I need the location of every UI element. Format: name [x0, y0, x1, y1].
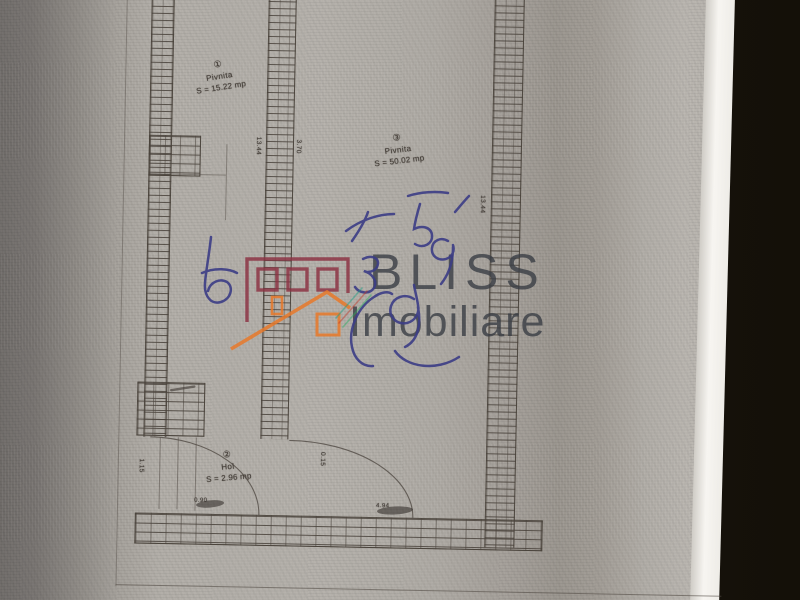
ink-smile-curve — [395, 351, 459, 366]
ink-figure-9-large — [390, 285, 419, 347]
photographed-floorplan-document: ① Pivnita S = 15.22 mp ③ Pivnita S = 50.… — [0, 0, 800, 600]
ink-big-curve — [351, 292, 392, 366]
ink-figure-5 — [414, 204, 432, 246]
ink-bar — [408, 192, 448, 196]
ink-figure-9-small — [432, 239, 454, 284]
handwritten-ink-annotation — [0, 0, 800, 600]
ink-figure-3 — [355, 257, 378, 292]
ink-stroke-1 — [346, 214, 394, 231]
ink-tick — [455, 196, 469, 212]
rainbow-streak-green — [343, 295, 371, 327]
